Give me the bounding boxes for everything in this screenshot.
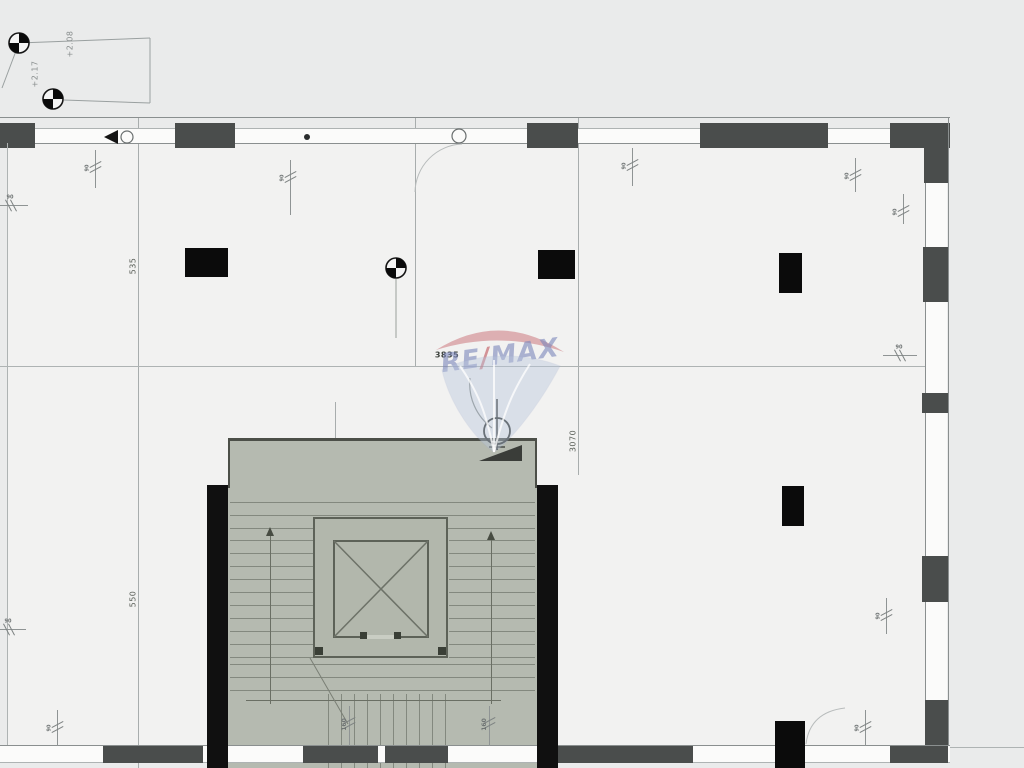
grid-lower-label: 550: [129, 591, 138, 608]
floor-plan-canvas: 7x16x30 7x16x30 9X33,6X30 130: [0, 0, 1024, 768]
door-arrow-left-icon: [104, 130, 118, 144]
window-mark: 90: [858, 710, 872, 746]
survey-marker-1: [9, 33, 29, 53]
door-swing-arc-bottom-right: [806, 708, 845, 744]
window-mark: 160: [482, 706, 496, 746]
window-mark: 90: [0, 198, 28, 212]
window-mark: 90: [625, 148, 639, 186]
wall-joint-dot: [304, 134, 310, 140]
window-mark: 90: [883, 348, 917, 362]
window-mark: 90: [88, 150, 102, 188]
window-mark: 90: [848, 158, 862, 192]
door-circle-right-icon: [452, 129, 466, 143]
window-mark: 90: [879, 598, 893, 634]
remax-watermark: RE/MAX: [428, 308, 578, 468]
window-mark: 90: [0, 622, 26, 636]
door-circle-left-icon: [121, 131, 133, 143]
window-mark: 90: [896, 194, 910, 224]
window-mark: 90: [50, 710, 64, 746]
window-mark: 160: [342, 706, 356, 746]
grid-upper-label: 535: [129, 258, 138, 275]
datum-marker: [386, 258, 406, 278]
window-mark: 90: [283, 160, 297, 215]
door-swing-arc-top: [415, 144, 462, 192]
remax-balloon-body: [442, 356, 560, 452]
survey-marker-2: [43, 89, 63, 109]
survey-connector-3: [64, 100, 150, 103]
